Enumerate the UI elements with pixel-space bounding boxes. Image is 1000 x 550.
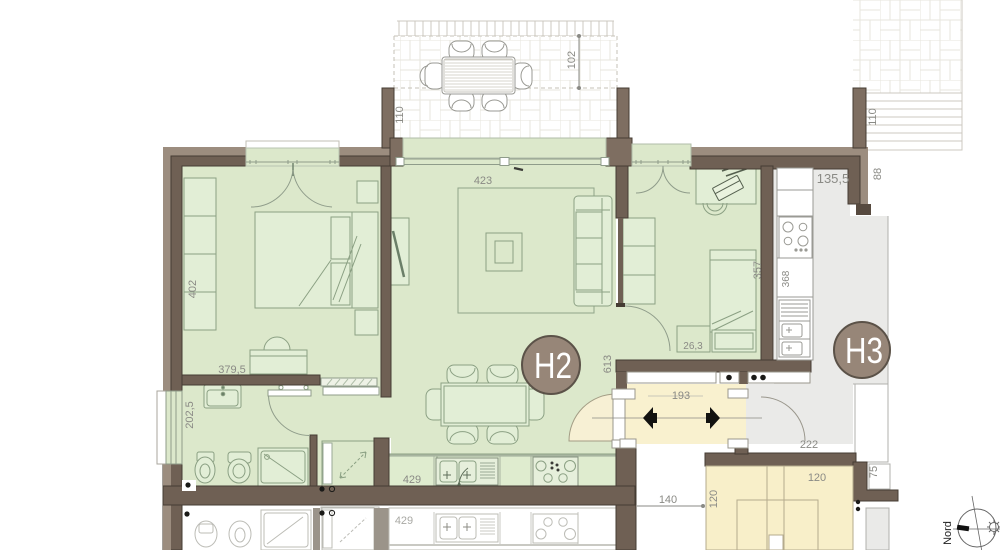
svg-text:75: 75 — [868, 466, 880, 478]
svg-text:429: 429 — [395, 515, 413, 527]
svg-text:429: 429 — [403, 474, 421, 486]
svg-text:193: 193 — [672, 390, 690, 402]
svg-text:H3: H3 — [845, 330, 883, 371]
svg-text:110: 110 — [867, 108, 879, 126]
svg-text:135,5: 135,5 — [817, 171, 850, 186]
svg-text:120: 120 — [708, 490, 720, 508]
svg-text:222: 222 — [800, 439, 818, 451]
svg-text:202,5: 202,5 — [184, 401, 196, 429]
svg-text:Nord: Nord — [942, 521, 954, 545]
svg-text:102: 102 — [566, 51, 578, 69]
svg-text:613: 613 — [602, 355, 614, 373]
svg-text:110: 110 — [394, 106, 406, 124]
svg-text:88: 88 — [872, 168, 884, 180]
svg-text:357: 357 — [752, 261, 764, 279]
svg-text:120: 120 — [808, 472, 826, 484]
svg-text:423: 423 — [474, 175, 492, 187]
svg-text:140: 140 — [659, 494, 677, 506]
svg-text:H2: H2 — [534, 345, 572, 386]
svg-text:368: 368 — [781, 270, 792, 287]
svg-text:379,5: 379,5 — [218, 364, 246, 376]
svg-text:402: 402 — [187, 280, 199, 298]
svg-text:26,3: 26,3 — [683, 341, 703, 352]
